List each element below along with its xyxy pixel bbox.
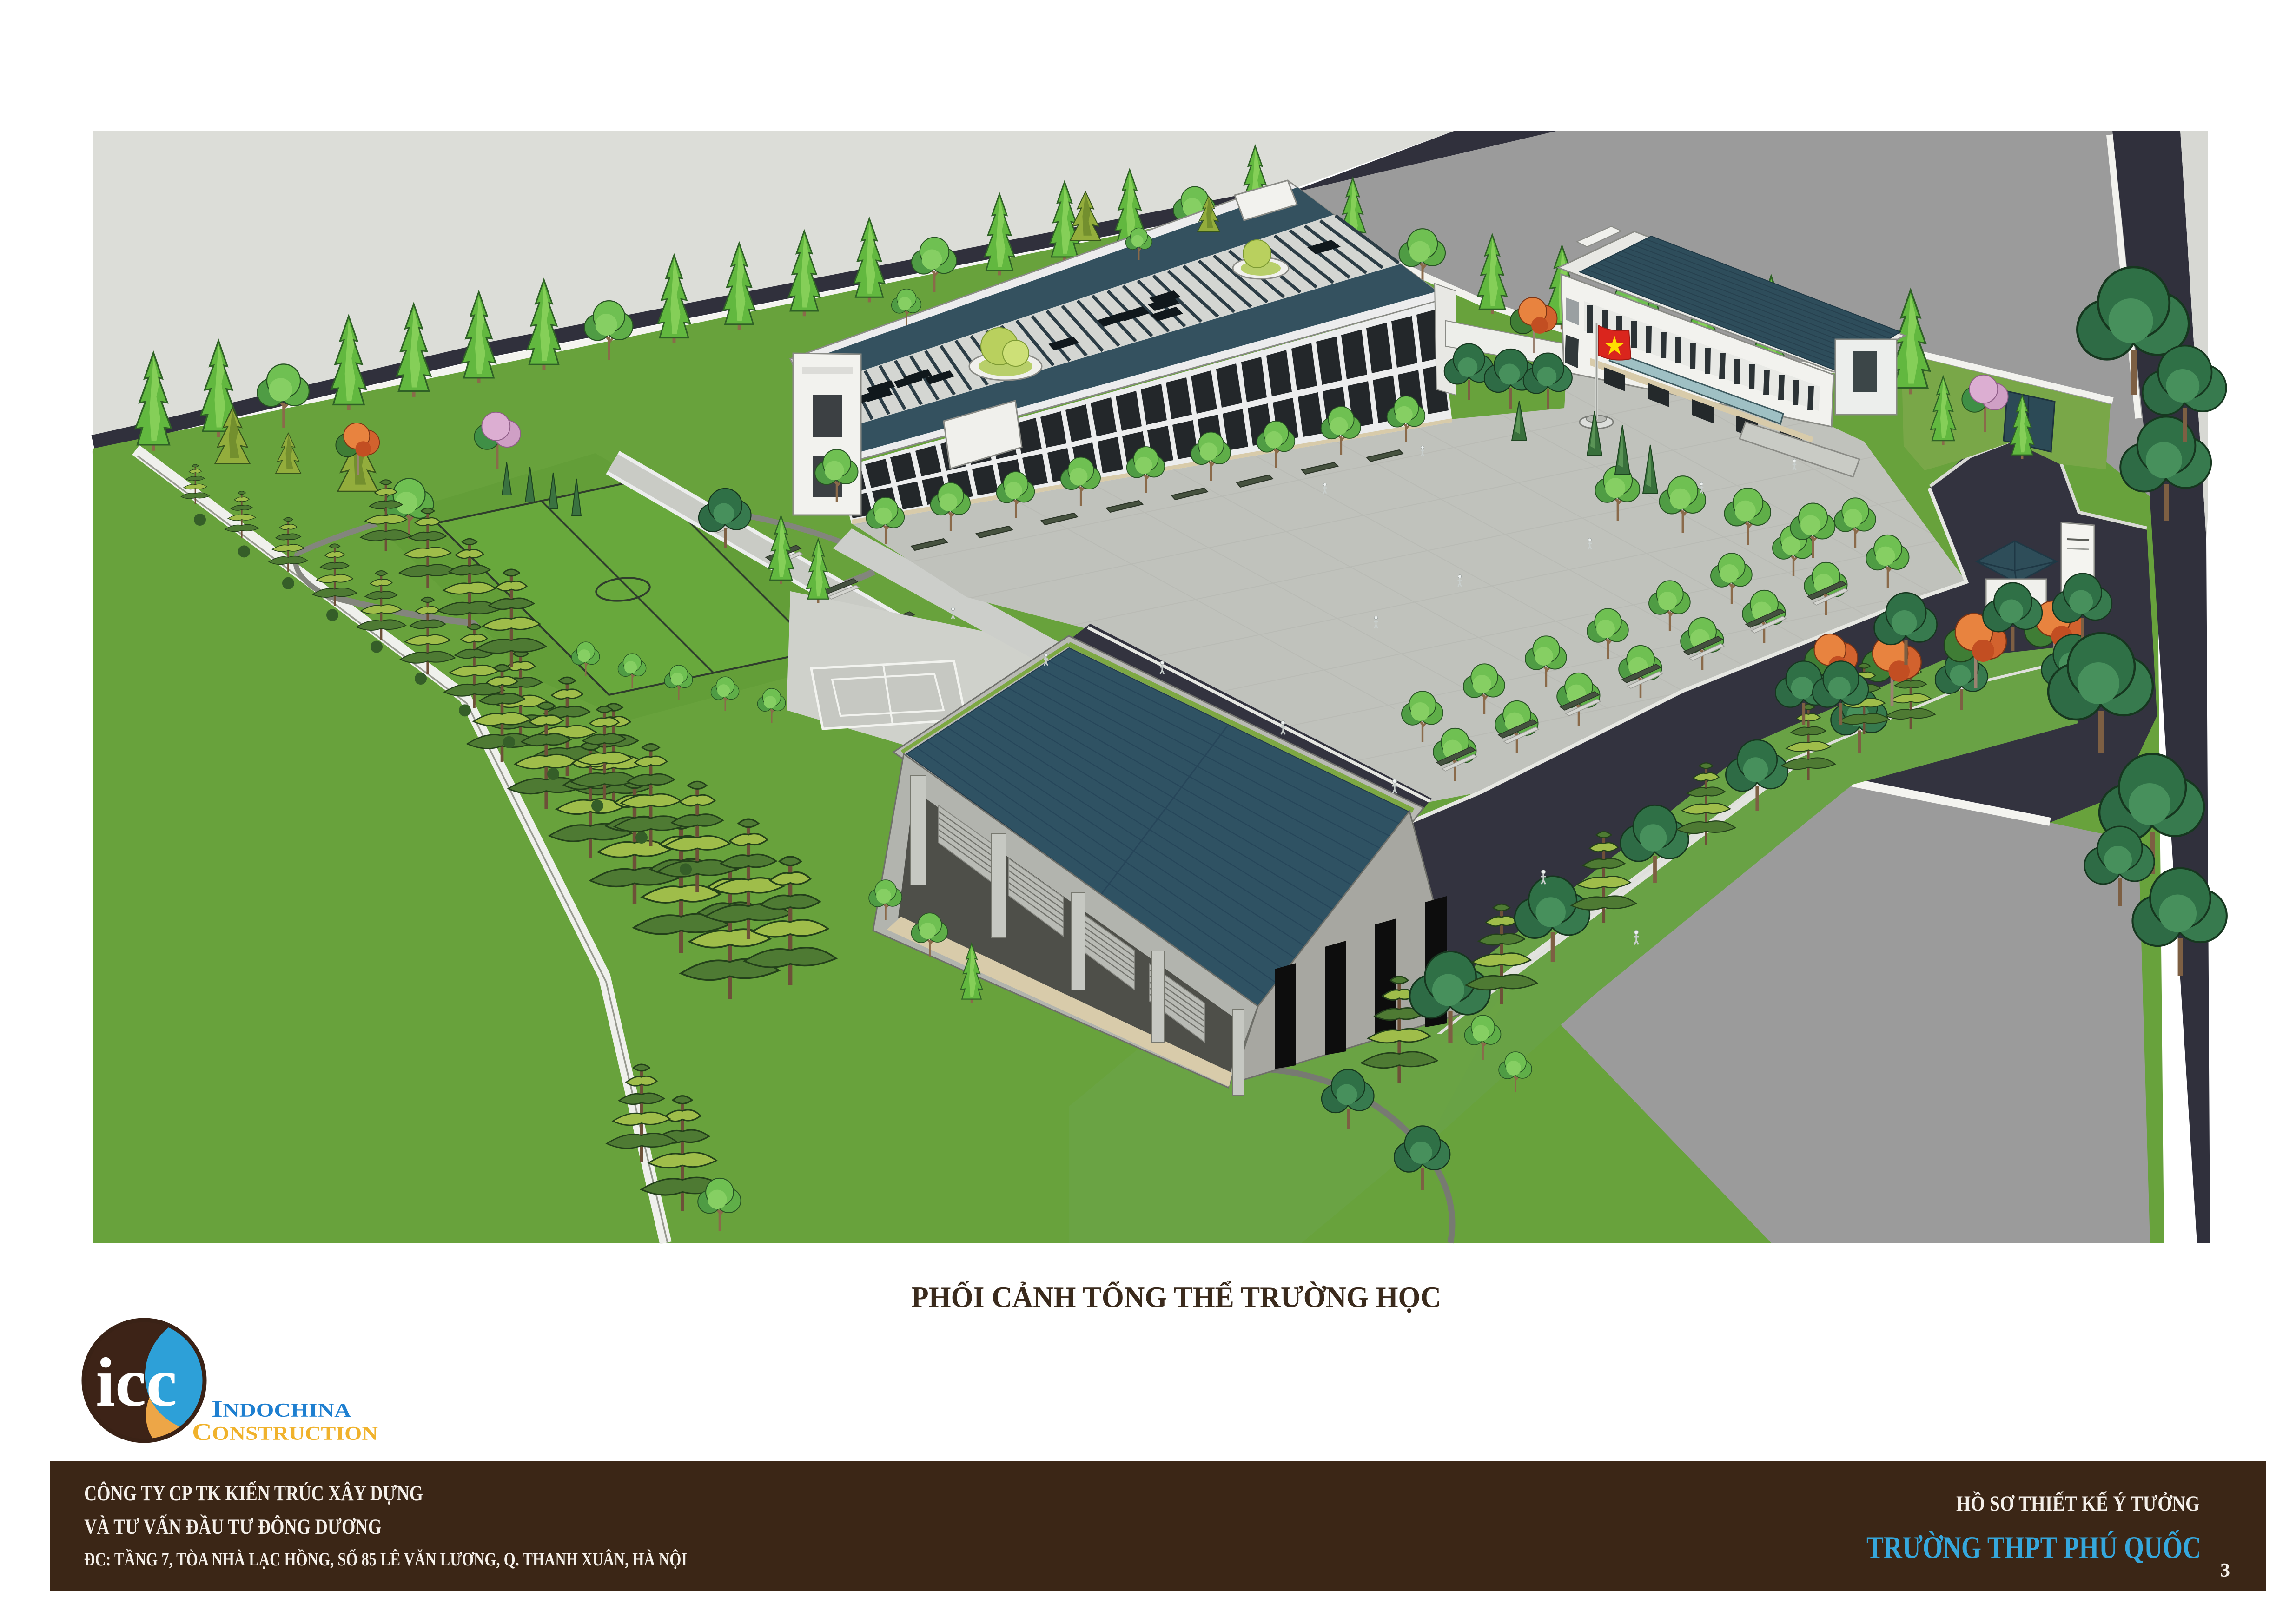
svg-text:TRƯỜNG THPT PHÚ QUỐC: TRƯỜNG THPT PHÚ QUỐC [1866, 1530, 2201, 1565]
svg-text:VÀ TƯ VẤN ĐẦU TƯ ĐÔNG DƯƠNG: VÀ TƯ VẤN ĐẦU TƯ ĐÔNG DƯƠNG [84, 1514, 382, 1539]
svg-text:icc: icc [96, 1344, 177, 1421]
svg-text:HỒ SƠ THIẾT KẾ Ý TƯỞNG: HỒ SƠ THIẾT KẾ Ý TƯỞNG [1956, 1491, 2200, 1516]
svg-text:INDOCHINA: INDOCHINA [212, 1396, 351, 1422]
svg-text:3: 3 [2220, 1560, 2230, 1581]
svg-text:CÔNG TY CP TK KIẾN TRÚC XÂY DỰ: CÔNG TY CP TK KIẾN TRÚC XÂY DỰNG [84, 1481, 423, 1505]
svg-text:CONSTRUCTION: CONSTRUCTION [192, 1419, 378, 1446]
svg-text:PHỐI CẢNH TỔNG THỂ TRƯỜNG HỌC: PHỐI CẢNH TỔNG THỂ TRƯỜNG HỌC [911, 1281, 1441, 1314]
svg-text:ĐC: TẦNG 7, TÒA NHÀ LẠC HỒNG,: ĐC: TẦNG 7, TÒA NHÀ LẠC HỒNG, SỐ 85 LÊ V… [84, 1548, 687, 1570]
